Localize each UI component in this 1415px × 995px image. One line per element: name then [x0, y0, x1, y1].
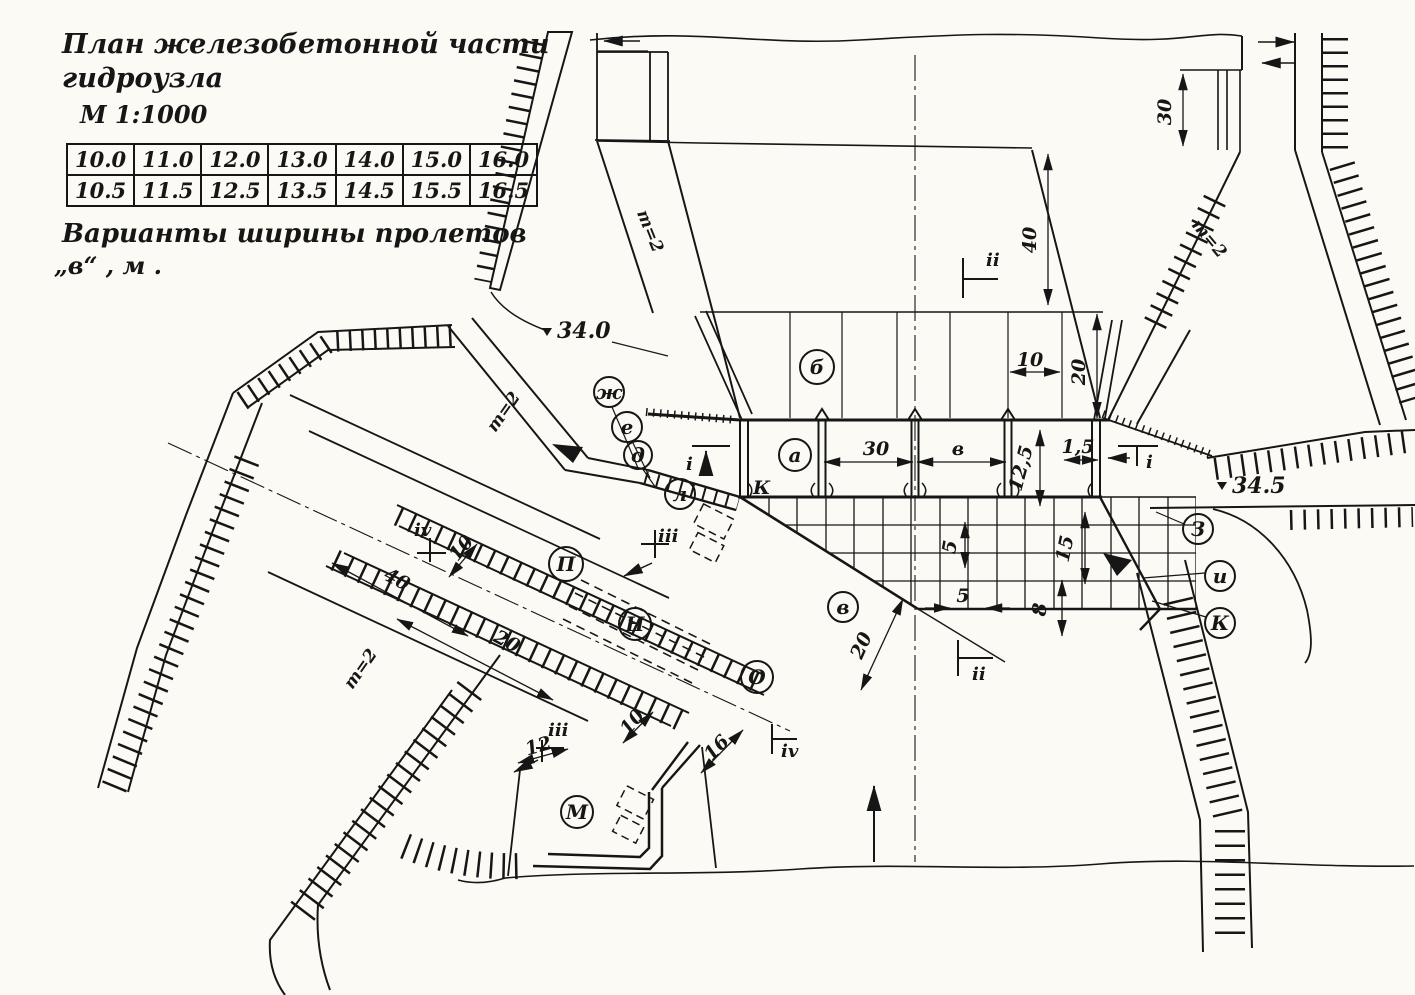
section-markers [417, 258, 1158, 772]
elevation-34-0: 34.0 [557, 318, 611, 344]
marker-i-left: i [686, 454, 693, 475]
table-caption-1: Варианты ширины пролетов [62, 219, 482, 249]
marker-iii-bottom: iii [548, 720, 569, 741]
elevation-34-5: 34.5 [1232, 473, 1286, 499]
stilling-basin-grid [740, 497, 1197, 662]
dim-lock-16: 16 [700, 731, 734, 765]
dim-10: 10 [1017, 349, 1043, 371]
elevation-triangle-icon [1217, 482, 1227, 490]
drawing-sheet: План железобетонной части гидроузла М 1:… [0, 0, 1415, 995]
label-O-circle: О [741, 661, 773, 693]
svg-text:и: и [1213, 564, 1228, 588]
marker-i-right: i [1146, 452, 1153, 473]
drawing-scale: М 1:1000 [80, 100, 482, 129]
label-P-circle: П [549, 547, 583, 581]
dim-15: 15 [1052, 534, 1079, 564]
right-bank [458, 430, 1415, 952]
dim-5-h: 5 [956, 585, 969, 607]
marker-ii-bottom: ii [972, 664, 986, 685]
svg-text:М: М [565, 800, 589, 824]
slope-lower-left: m=2 [340, 645, 382, 693]
svg-text:К: К [1210, 611, 1230, 635]
dim-30: 30 [863, 438, 889, 460]
label-M-circle: М [561, 796, 593, 828]
label-a-circle: а [779, 439, 811, 471]
dim-5-v: 5 [938, 539, 962, 556]
dim-top-40: 40 [1019, 227, 1041, 253]
dim-12-5: 12,5 [1005, 443, 1038, 493]
marker-iii-top: iii [658, 526, 679, 547]
label-Z-circle: З [1156, 512, 1213, 544]
slope-top-right: m=2 [1187, 215, 1231, 262]
svg-text:д: д [631, 443, 645, 467]
svg-text:П: П [556, 552, 577, 576]
table-row: 10.5 11.5 12.5 13.5 14.5 15.5 16.5 [67, 175, 537, 206]
svg-text:е: е [621, 415, 634, 439]
svg-text:в: в [836, 595, 849, 619]
title-block: План железобетонной части гидроузла М 1:… [62, 28, 482, 280]
table-caption-2: „в“ , м . [54, 251, 482, 280]
dim-diag-20: 20 [846, 629, 877, 663]
svg-text:л: л [673, 482, 688, 506]
label-K-circle: К [1152, 601, 1235, 638]
gate-letter-K: К [752, 477, 771, 499]
dim-8: 8 [1028, 602, 1051, 618]
label-v-circle: в [828, 592, 858, 622]
svg-text:б: б [810, 355, 824, 379]
label-N-circle: Н [619, 608, 651, 640]
svg-text:Н: Н [625, 612, 646, 636]
dim-1-5: 1,5 [1061, 436, 1094, 458]
span-variants-table: 10.0 11.0 12.0 13.0 14.0 15.0 16.0 10.5 … [66, 143, 538, 207]
svg-text:З: З [1191, 517, 1205, 541]
dim-top-right-30: 30 [1154, 99, 1176, 125]
dim-lock-10b: 10 [615, 705, 649, 739]
slope-top-left: m=2 [632, 207, 667, 256]
svg-text:О: О [748, 665, 766, 689]
table-row: 10.0 11.0 12.0 13.0 14.0 15.0 16.0 [67, 144, 537, 175]
marker-ii-top: ii [986, 250, 1000, 271]
circled-labels: б а в ж е д [549, 350, 1235, 828]
elevation-triangle-icon [542, 328, 552, 336]
dim-span-v: в [952, 438, 964, 460]
slope-labels: m=2 m=2 m=2 m=2 [340, 207, 1231, 693]
label-b-circle: б [800, 350, 834, 384]
title-line-1: План железобетонной части [62, 28, 482, 62]
svg-text:ж: ж [596, 380, 623, 404]
title-line-2: гидроузла [62, 62, 482, 96]
marker-iv-top: iv [414, 520, 432, 541]
marker-iv-bottom: iv [781, 741, 799, 762]
svg-text:а: а [789, 443, 802, 467]
dim-20: 20 [1068, 359, 1090, 386]
navigation-lock [98, 318, 790, 995]
